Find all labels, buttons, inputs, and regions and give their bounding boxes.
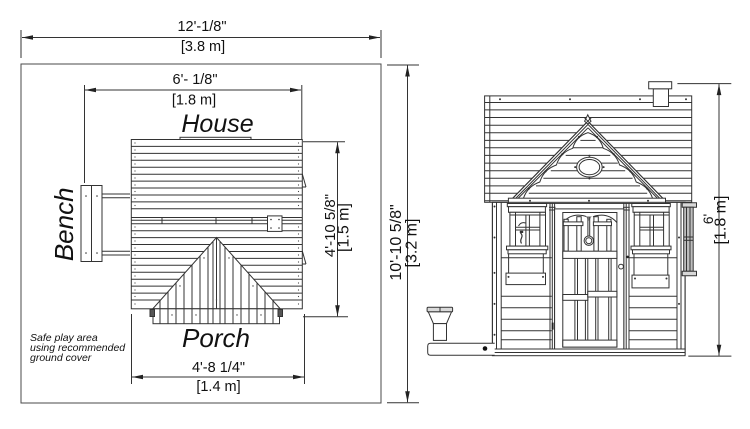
svg-text:[1.8 m]: [1.8 m] [713,196,730,245]
svg-text:12'-1/8": 12'-1/8" [177,19,226,35]
svg-text:[1.5 m]: [1.5 m] [335,203,352,252]
svg-text:House: House [181,110,253,138]
svg-text:Porch: Porch [182,323,250,353]
svg-text:[3.2 m]: [3.2 m] [404,219,421,268]
svg-text:[1.8 m]: [1.8 m] [172,93,216,109]
svg-text:[1.4 m]: [1.4 m] [196,379,240,395]
svg-text:Bench: Bench [49,187,79,261]
svg-text:ground cover: ground cover [30,352,92,364]
svg-text:4'-8 1/4": 4'-8 1/4" [192,360,245,376]
svg-text:6'- 1/8": 6'- 1/8" [173,72,218,88]
svg-text:[3.8 m]: [3.8 m] [181,39,225,55]
svg-text:10'-10 5/8": 10'-10 5/8" [388,204,405,280]
